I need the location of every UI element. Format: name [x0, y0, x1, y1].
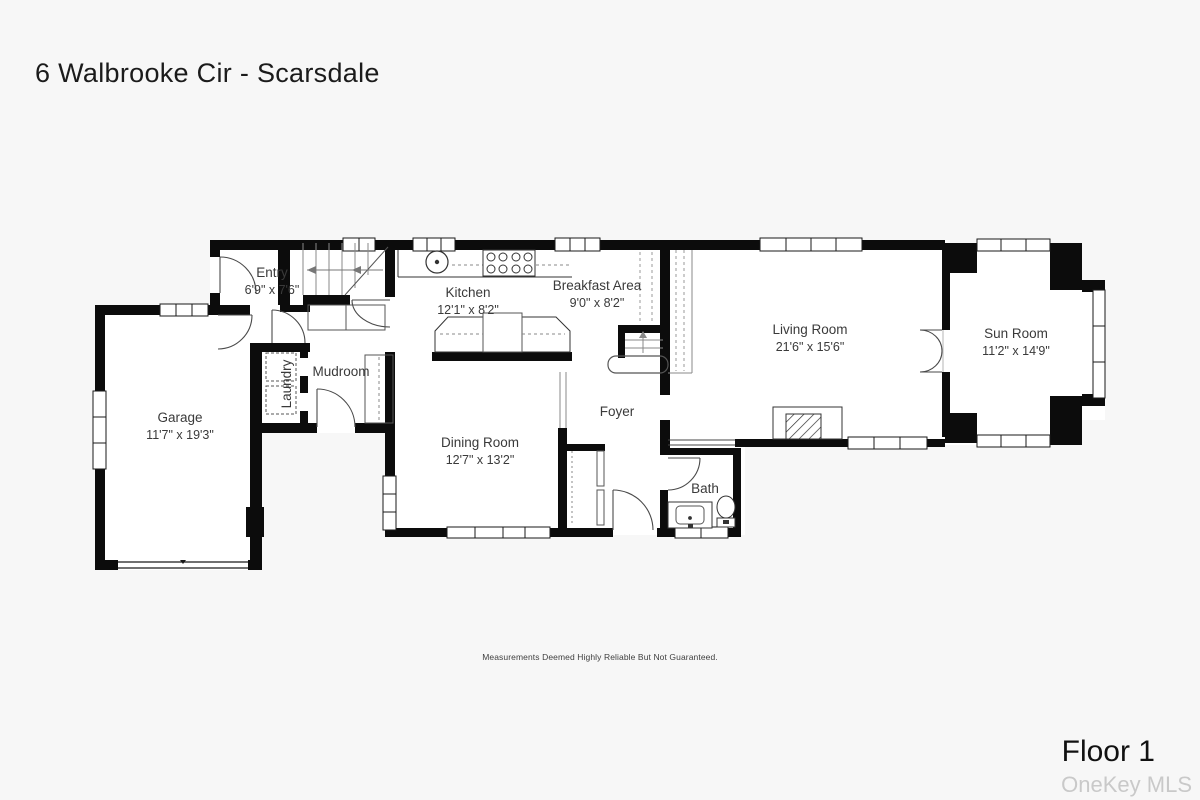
room-label-garage: Garage 11'7" x 19'3": [146, 409, 214, 443]
kitchen-island: [435, 313, 570, 352]
bath-vanity-icon: [668, 502, 712, 528]
sink-icon: [426, 251, 448, 273]
room-label-sunroom: Sun Room 11'2" x 14'9": [982, 325, 1050, 359]
room-label-kitchen: Kitchen 12'1" x 8'2": [437, 284, 499, 318]
stove-icon: [483, 250, 535, 276]
page-title: 6 Walbrooke Cir - Scarsdale: [35, 58, 380, 89]
floorplan-drawing: [0, 0, 1200, 800]
room-label-breakfast: Breakfast Area 9'0" x 8'2": [553, 277, 642, 311]
fireplace-icon: [773, 407, 842, 439]
toilet-icon: [717, 496, 735, 527]
room-label-laundry: Laundry: [278, 360, 296, 409]
floorplan-page: 6 Walbrooke Cir - Scarsdale Entry 6'9" x…: [0, 0, 1200, 800]
room-label-bath: Bath: [691, 480, 719, 498]
room-label-dining: Dining Room 12'7" x 13'2": [441, 434, 519, 468]
disclaimer-text: Measurements Deemed Highly Reliable But …: [482, 652, 718, 662]
room-label-foyer: Foyer: [600, 403, 635, 421]
room-label-entry: Entry 6'9" x 7'6": [245, 264, 300, 298]
watermark: OneKey MLS: [1061, 772, 1192, 798]
floor-label: Floor 1: [1062, 735, 1155, 769]
room-label-living: Living Room 21'6" x 15'6": [772, 321, 847, 355]
room-label-mudroom: Mudroom: [312, 363, 369, 381]
